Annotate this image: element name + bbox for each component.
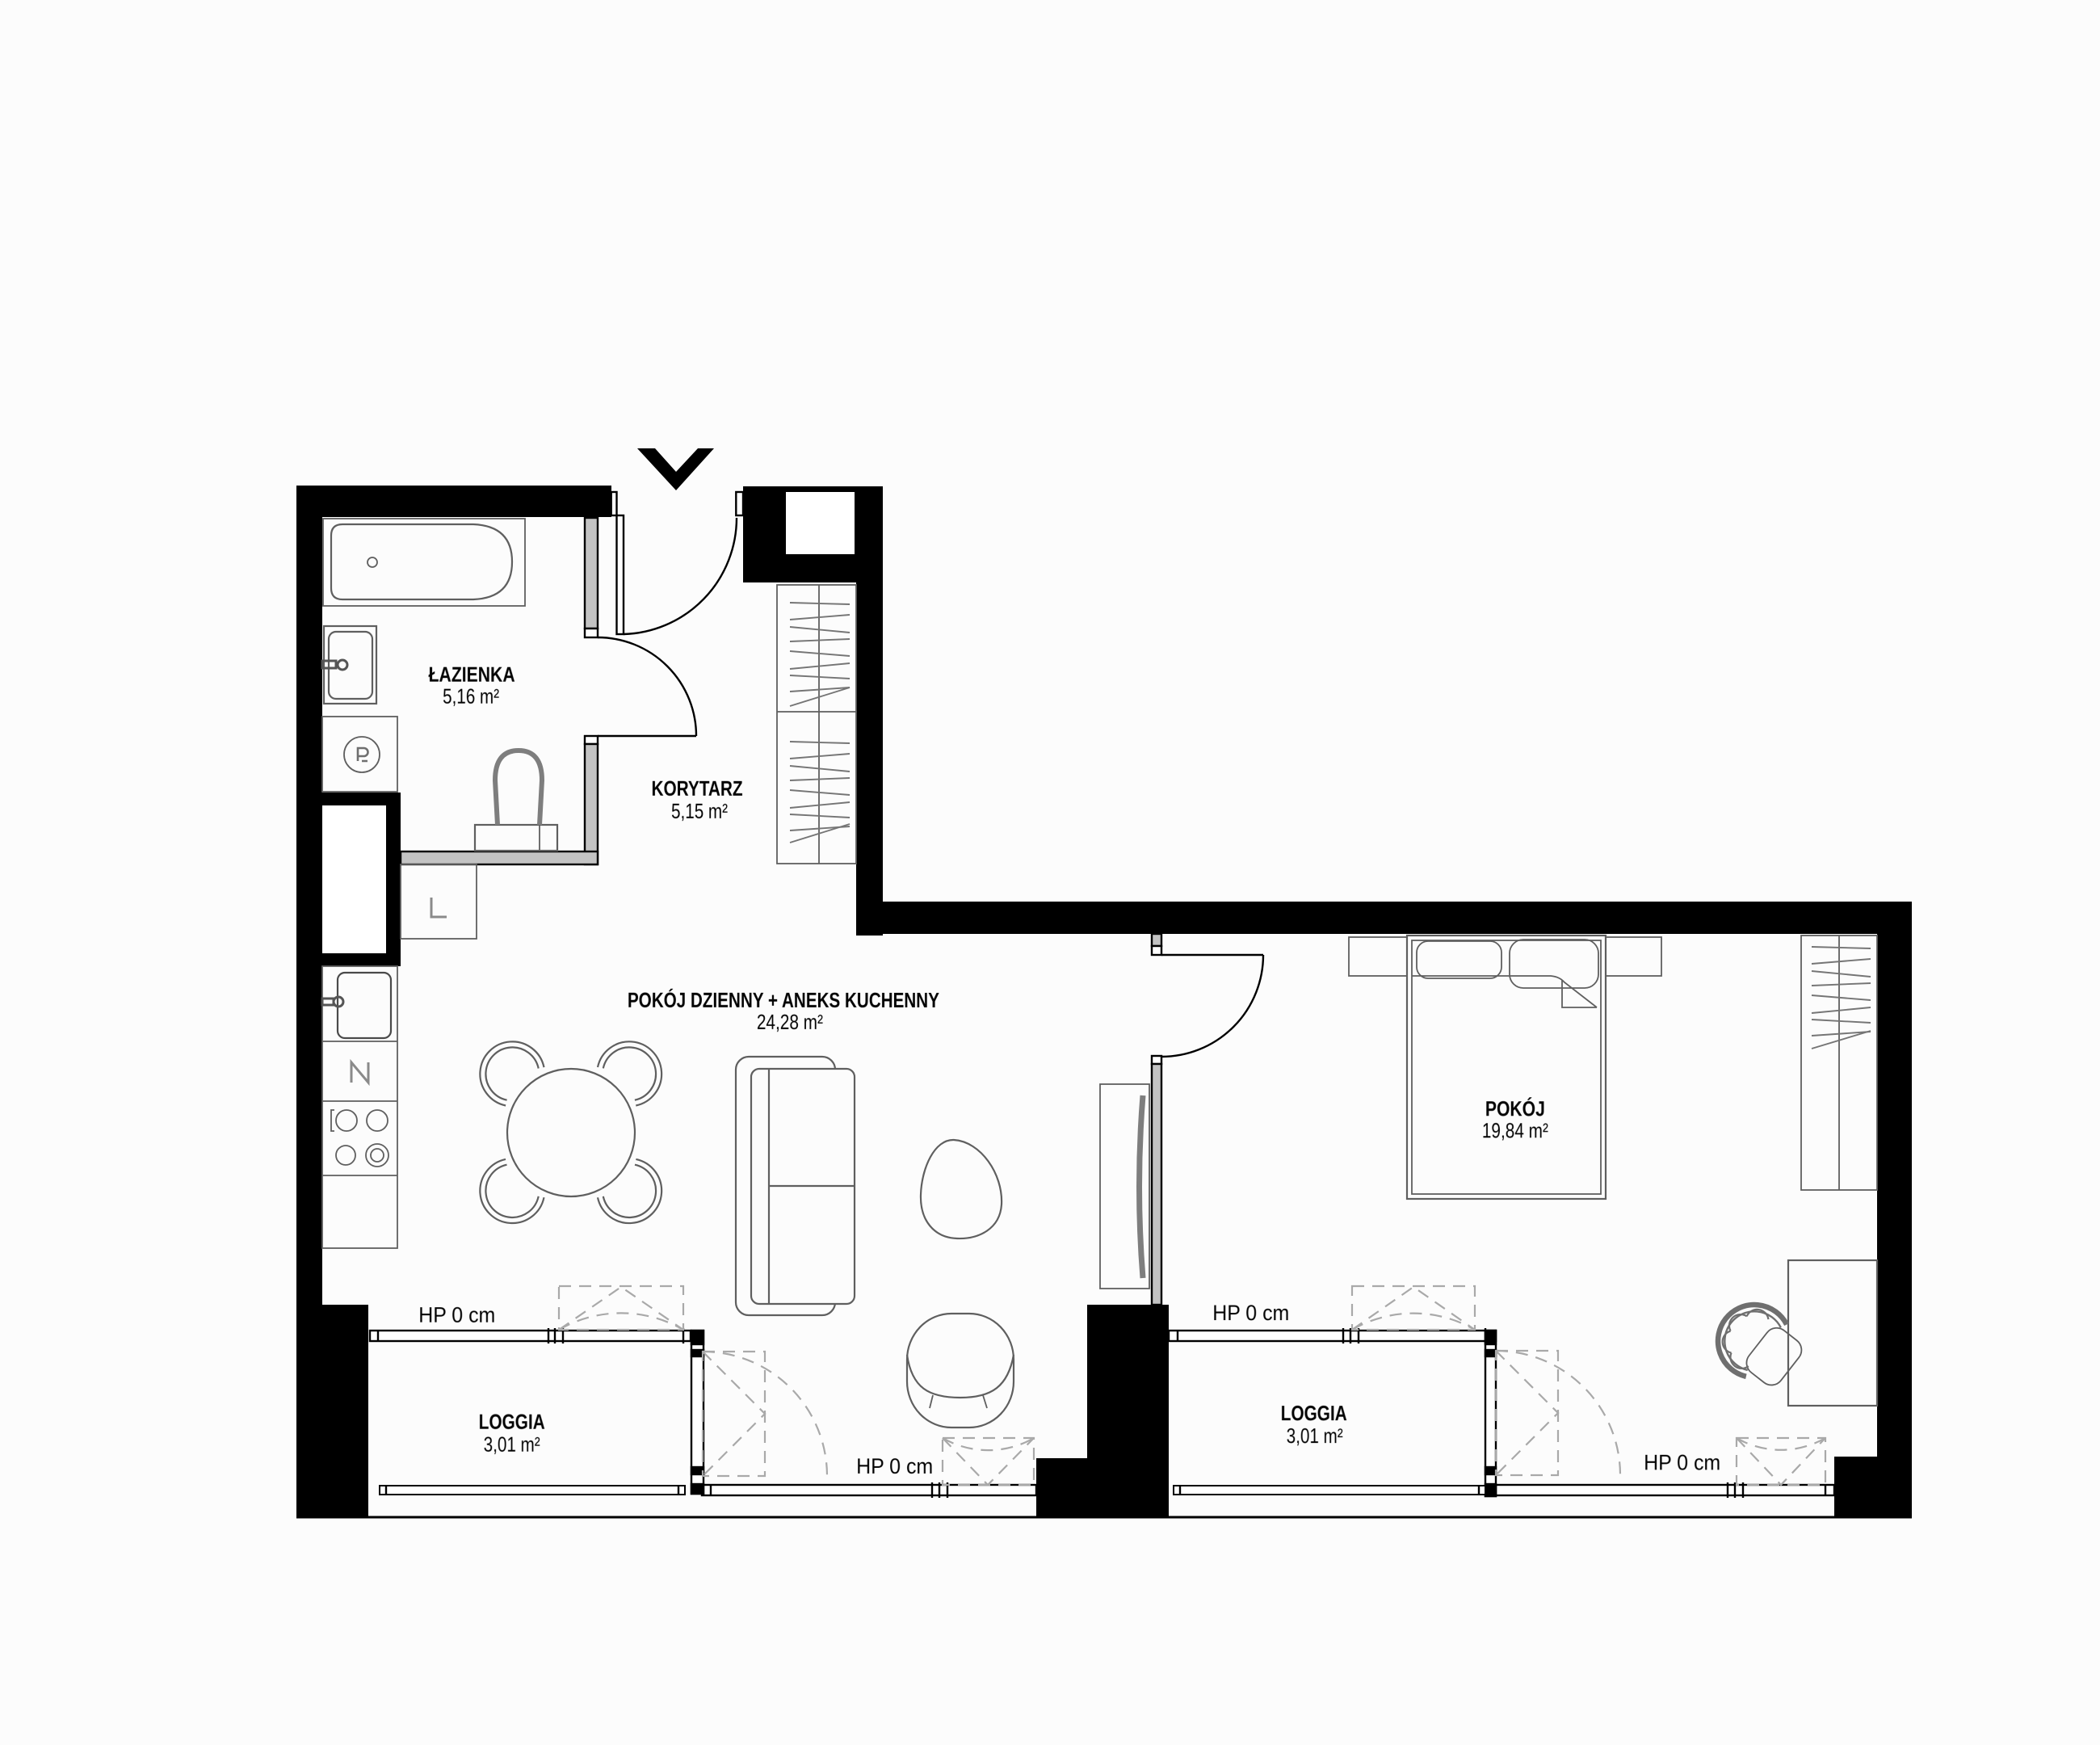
svg-text:LOGGIA: LOGGIA — [479, 1410, 545, 1434]
svg-text:POKÓJ: POKÓJ — [1485, 1096, 1545, 1121]
svg-text:KORYTARZ: KORYTARZ — [652, 776, 743, 801]
svg-text:3,01 m²: 3,01 m² — [1287, 1423, 1343, 1448]
svg-text:24,28 m²: 24,28 m² — [757, 1010, 823, 1034]
svg-text:19,84 m²: 19,84 m² — [1482, 1118, 1548, 1142]
svg-text:5,16 m²: 5,16 m² — [443, 684, 499, 709]
svg-text:5,15 m²: 5,15 m² — [671, 799, 728, 823]
svg-text:HP 0 cm: HP 0 cm — [418, 1303, 495, 1327]
svg-text:LOGGIA: LOGGIA — [1281, 1401, 1347, 1425]
svg-text:HP 0 cm: HP 0 cm — [856, 1454, 933, 1478]
svg-text:HP 0 cm: HP 0 cm — [1644, 1450, 1720, 1474]
svg-text:ŁAZIENKA: ŁAZIENKA — [429, 662, 515, 687]
svg-text:3,01 m²: 3,01 m² — [484, 1432, 540, 1457]
svg-text:POKÓJ DZIENNY + ANEKS KUCHENNY: POKÓJ DZIENNY + ANEKS KUCHENNY — [628, 988, 939, 1012]
svg-text:HP 0 cm: HP 0 cm — [1212, 1301, 1289, 1325]
